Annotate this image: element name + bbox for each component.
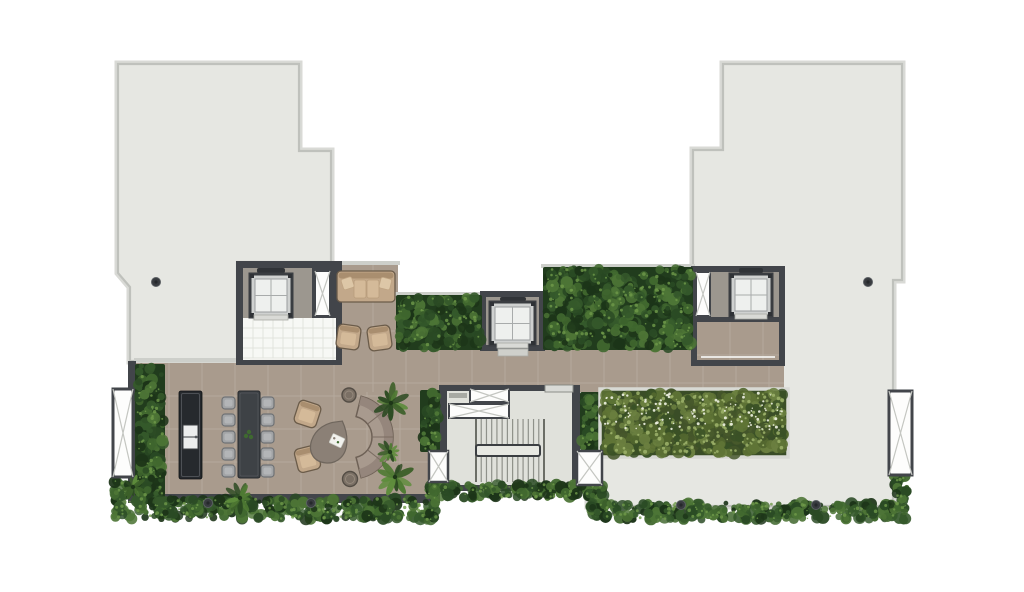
- lift-west-car-post-0: [250, 274, 254, 278]
- hedge-east-corner-leaf-fleck: [896, 503, 898, 505]
- side-table: [343, 472, 358, 487]
- hedge-south-east-leaf-fleck: [600, 504, 602, 506]
- hedge-south-center-left-leaf-fleck: [430, 518, 432, 520]
- hedge-south-center-leaf-fleck: [531, 487, 533, 489]
- hedge-south-west-bush: [361, 510, 373, 522]
- hedge-center-east-leaf-fleck: [689, 346, 692, 349]
- hedge-south-west-leaf-fleck: [322, 508, 325, 511]
- terrace-planting-bed-leaf-fleck: [155, 390, 157, 392]
- hedge-south-east-bush: [834, 501, 843, 510]
- hedge-south-center-left-leaf-fleck: [426, 518, 429, 521]
- planter-east-flower: [626, 394, 628, 396]
- hedge-south-center-leaf-fleck: [464, 493, 466, 495]
- planter-east-fleck: [703, 440, 706, 443]
- hedge-center-east-leaf-fleck: [555, 306, 558, 309]
- hedge-south-west-bush: [337, 505, 342, 510]
- hedge-east-corner-bush: [892, 489, 901, 498]
- hedge-south-east-leaf-fleck: [770, 503, 773, 506]
- hedge-center-east-leaf-fleck: [623, 291, 625, 293]
- lift-east-lintel: [739, 268, 763, 273]
- planter-east-flower: [604, 423, 606, 425]
- planter-east-fleck: [662, 447, 665, 450]
- chair-seat: [264, 468, 272, 475]
- planter-east-flower: [777, 410, 778, 411]
- hedge-center-west-leaf-fleck: [432, 298, 434, 300]
- hedge-center-west-leaf-fleck: [459, 334, 461, 336]
- hedge-center-west-bush: [477, 324, 482, 329]
- hedge-center-east-leaf-fleck: [551, 268, 554, 271]
- dining-set: [222, 391, 274, 478]
- lift-central-car-post-3: [531, 341, 535, 345]
- hedge-center-east-leaf-fleck: [662, 331, 664, 333]
- planter-east-shrub: [747, 443, 759, 455]
- hedge-south-east-leaf-fleck: [874, 510, 878, 514]
- planter-east-fleck: [673, 450, 676, 453]
- hedge-center-west-bush: [434, 319, 440, 325]
- hedge-by-stair-leaf-fleck: [432, 443, 434, 445]
- roof-drain: [307, 499, 316, 508]
- hedge-center-west-bush: [404, 338, 410, 344]
- hedge-south-west-leaf-fleck: [155, 511, 159, 515]
- planter-east-fleck: [623, 450, 627, 454]
- hedge-south-east-leaf-fleck: [639, 516, 642, 519]
- planter-east-fleck: [604, 445, 607, 448]
- planter-east-fleck: [623, 447, 626, 450]
- hedge-south-west-bush: [267, 510, 275, 518]
- hedge-south-west-leaf-fleck: [196, 504, 198, 506]
- planter-east-fleck: [615, 449, 618, 452]
- hedge-center-east-bush: [544, 339, 554, 349]
- hedge-south-west-bush: [397, 515, 402, 520]
- hedge-south-west-corner-leaf-fleck: [119, 498, 120, 499]
- hedge-center-west-bush: [466, 324, 475, 333]
- planter-east-flower: [689, 419, 690, 420]
- hedge-south-east-bush: [737, 507, 746, 516]
- hedge-south-east-leaf-fleck: [600, 511, 602, 513]
- lift-east-door-line: [701, 356, 775, 358]
- hedge-south-east-leaf-fleck: [634, 506, 635, 507]
- planter-east-shrub: [631, 404, 637, 410]
- hedge-center-east-leaf-fleck: [605, 277, 607, 279]
- hedge-east-corner-leaf-fleck: [898, 478, 901, 481]
- planter-east-fleck: [659, 419, 661, 421]
- hedge-center-east-leaf-fleck: [566, 338, 569, 341]
- hedge-south-center-leaf-fleck: [538, 489, 540, 491]
- planter-east-fleck: [762, 393, 764, 395]
- hedge-center-east-leaf-fleck: [611, 303, 614, 306]
- hedge-center-east-leaf-fleck: [641, 296, 643, 298]
- planter-east-shrub: [685, 395, 691, 401]
- planter-east-flower: [657, 407, 659, 409]
- planter-east-flower: [758, 410, 761, 413]
- terrace-planting-bed-bush: [148, 428, 153, 433]
- terrace-planting-bed-leaf-fleck: [155, 407, 158, 410]
- hedge-center-east-bush: [616, 296, 625, 305]
- hedge-south-east-bush: [741, 515, 750, 524]
- planter-east-fleck: [763, 396, 766, 399]
- hedge-south-west-leaf-fleck: [219, 503, 220, 504]
- hedge-center-east-leaf-fleck: [657, 296, 659, 298]
- hedge-south-east-bush: [621, 510, 633, 522]
- sofa-pillow: [379, 277, 392, 290]
- hedge-south-west-bush: [257, 500, 261, 504]
- hedge-center-west-leaf-fleck: [420, 309, 422, 311]
- hedge-south-east-leaf-fleck: [892, 514, 895, 517]
- hedge-south-east-bush: [704, 503, 711, 510]
- planter-east-fleck: [628, 407, 630, 409]
- terrace-planting-bed-leaf-fleck: [149, 470, 152, 473]
- planter-east-fleck: [705, 434, 708, 437]
- terrace-planting-bed-bush: [144, 486, 152, 494]
- planter-east-flower: [643, 423, 645, 425]
- planter-east-flower: [774, 417, 777, 420]
- hedge-center-east-leaf-fleck: [581, 269, 584, 272]
- hedge-east-corner-leaf-fleck: [900, 495, 903, 498]
- hedge-south-east-leaf-fleck: [720, 515, 723, 518]
- hedge-south-center-bush: [498, 481, 506, 489]
- hedge-south-center-leaf-fleck: [491, 485, 494, 488]
- hedge-center-east-leaf-fleck: [655, 275, 658, 278]
- terrace-planting-bed-leaf-fleck: [159, 475, 161, 477]
- planter-east-fleck: [731, 416, 733, 418]
- hedge-south-west-leaf-fleck: [406, 501, 408, 503]
- hedge-center-west-leaf-fleck: [410, 325, 413, 328]
- planter-east-fleck: [637, 434, 639, 436]
- planter-east-shrub: [697, 405, 706, 414]
- hedge-south-east-leaf-fleck: [765, 505, 768, 508]
- terrace-planting-bed-bush: [156, 468, 166, 478]
- planter-east-fleck: [699, 402, 701, 404]
- hedge-south-east-leaf-fleck: [779, 509, 781, 511]
- hedge-south-west-leaf-fleck: [298, 515, 301, 518]
- hedge-south-west-leaf-fleck: [206, 516, 208, 518]
- hedge-south-center-left-leaf-fleck: [428, 493, 430, 495]
- hedge-south-west-leaf-fleck: [140, 497, 143, 500]
- planter-east-fleck: [705, 439, 708, 442]
- vent-stair-se: [577, 451, 602, 485]
- hedge-center-east-leaf-fleck: [630, 305, 632, 307]
- hedge-south-west-leaf-fleck: [164, 502, 167, 505]
- planter-east: [598, 388, 789, 460]
- hedge-center-east-bush: [677, 324, 681, 328]
- hedge-by-stair-bush: [432, 423, 440, 431]
- terrace-planting-bed-leaf-fleck: [152, 408, 154, 410]
- drain-hole: [814, 503, 817, 506]
- planter-east-fleck: [731, 407, 734, 410]
- planter-east-fleck: [679, 421, 682, 424]
- planter-east-fleck: [686, 441, 688, 443]
- hedge-center-east-bush: [646, 294, 656, 304]
- lift-east-car-post-0: [730, 274, 734, 278]
- hedge-center-east-leaf-fleck: [662, 292, 664, 294]
- hedge-center-west-leaf-fleck: [415, 322, 416, 323]
- hedge-center-east-leaf-fleck: [599, 288, 602, 291]
- hedge-by-planter-leaf-fleck: [585, 411, 587, 413]
- hedge-center-east-leaf-fleck: [584, 269, 587, 272]
- hedge-south-east-leaf-fleck: [606, 506, 609, 509]
- planter-east-fleck: [616, 402, 619, 405]
- planter-east-fleck: [642, 399, 644, 401]
- hedge-south-west-leaf-fleck: [178, 508, 180, 510]
- terrace-planting-bed-bush: [156, 434, 168, 446]
- hedge-south-east-bush: [722, 507, 728, 513]
- hedge-south-east-leaf-fleck: [619, 513, 622, 516]
- planter-east-fleck: [670, 403, 672, 405]
- roof-drain: [204, 499, 213, 508]
- lift-east-shaft-duct: [696, 272, 710, 316]
- hedge-center-east-bush: [647, 310, 652, 315]
- hedge-center-east-bush: [583, 281, 592, 290]
- hedge-south-east-leaf-fleck: [843, 513, 847, 517]
- hedge-south-east-leaf-fleck: [856, 507, 860, 511]
- hedge-center-east-bush: [544, 313, 550, 319]
- planter-east-flower: [615, 421, 617, 423]
- hedge-south-west-leaf-fleck: [317, 505, 319, 507]
- roof-terrace-floor-plan: [0, 0, 1024, 592]
- planter-east-flower: [624, 427, 626, 429]
- hedge-south-center-leaf-fleck: [483, 489, 485, 491]
- planter-east-fleck: [745, 417, 747, 419]
- planter-east-fleck: [738, 407, 740, 409]
- hedge-center-west-bush: [452, 311, 457, 316]
- planter-east-flower: [664, 393, 666, 395]
- hedge-south-west-leaf-fleck: [347, 503, 350, 506]
- planter-east-fleck: [679, 439, 681, 441]
- planter-east-fleck: [623, 402, 625, 404]
- terrace-planting-bed-leaf-fleck: [143, 493, 146, 496]
- table-centerpiece: [244, 434, 248, 438]
- hedge-south-center-leaf-fleck: [485, 487, 487, 489]
- planter-east-flower: [703, 412, 705, 414]
- planter-east-fleck: [742, 400, 745, 403]
- hedge-south-east-leaf-fleck: [806, 510, 807, 511]
- planter-east-flower: [726, 407, 728, 409]
- lift-central-sill: [497, 343, 528, 348]
- hedge-south-west-leaf-fleck: [327, 501, 330, 504]
- hedge-center-east-bush: [613, 341, 621, 349]
- planter-east-flower: [768, 425, 770, 427]
- hedge-center-east-leaf-fleck: [602, 332, 605, 335]
- hedge-south-west-leaf-fleck: [224, 502, 226, 504]
- planter-east-fleck: [781, 408, 783, 410]
- hedge-south-east-leaf-fleck: [757, 517, 759, 519]
- chair-seat: [264, 417, 272, 424]
- planter-east-fleck: [736, 418, 739, 421]
- planter-east-fleck: [780, 446, 784, 450]
- hedge-center-west-leaf-fleck: [461, 321, 463, 323]
- hedge-center-east-bush: [676, 280, 685, 289]
- planter-east-flower: [614, 404, 616, 406]
- lift-east-car-post-3: [768, 312, 772, 316]
- planter-east-fleck: [659, 439, 661, 441]
- lift-west-sill: [254, 315, 288, 320]
- terrace-planting-bed-leaf-fleck: [153, 410, 156, 413]
- hedge-south-center-leaf-fleck: [508, 486, 510, 488]
- hedge-south-center-leaf-fleck: [564, 495, 567, 498]
- lift-east: [696, 268, 779, 360]
- hedge-south-east-leaf-fleck: [628, 504, 629, 505]
- planter-east-flower: [702, 399, 704, 401]
- hedge-center-east-leaf-fleck: [623, 315, 625, 317]
- hedge-center-west-bush: [403, 320, 409, 326]
- hedge-south-west-leaf-fleck: [129, 501, 131, 503]
- terrace-planting-bed-bush: [135, 378, 142, 385]
- hedge-south-west-leaf-fleck: [121, 509, 123, 511]
- planter-east-fleck: [710, 449, 712, 451]
- hedge-center-east-leaf-fleck: [560, 285, 564, 289]
- hedge-center-east-leaf-fleck: [634, 288, 636, 290]
- hedge-center-east-bush: [681, 333, 693, 345]
- planter-east-fleck: [726, 439, 728, 441]
- terrace-planting-bed-leaf-fleck: [138, 441, 140, 443]
- planter-east-flower: [639, 424, 641, 426]
- planter-east-flower: [645, 412, 647, 414]
- planter-east-fleck: [649, 395, 653, 399]
- hedge-center-east-leaf-fleck: [580, 289, 582, 291]
- hedge-center-east-leaf-fleck: [635, 304, 638, 307]
- hedge-south-west-leaf-fleck: [403, 514, 405, 516]
- hedge-center-east-leaf-fleck: [603, 335, 606, 338]
- hedge-south-center-left-leaf-fleck: [431, 509, 433, 511]
- hedge-center-west-leaf-fleck: [465, 317, 467, 319]
- hedge-south-center-bush: [513, 493, 522, 502]
- hedge-south-east-leaf-fleck: [832, 504, 834, 506]
- planter-east-flower: [779, 413, 781, 415]
- hedge-south-west-bush: [279, 496, 285, 502]
- hedge-center-east-leaf-fleck: [673, 341, 675, 343]
- terrace-planting-bed-bush: [148, 475, 155, 482]
- hedge-center-east-leaf-fleck: [585, 332, 589, 336]
- planter-east-fleck: [777, 440, 780, 443]
- hedge-south-west-leaf-fleck: [340, 516, 342, 518]
- planter-east-fleck: [603, 415, 606, 418]
- hedge-center-east-leaf-fleck: [646, 275, 648, 277]
- hedge-center-east-bush: [585, 340, 592, 347]
- planter-east-fleck: [665, 442, 669, 446]
- hedge-center-east-leaf-fleck: [615, 291, 618, 294]
- palm-center: [131, 485, 135, 489]
- hedge-center-east-leaf-fleck: [620, 325, 623, 328]
- planter-east-fleck: [679, 449, 683, 453]
- hedge-south-west-leaf-fleck: [396, 503, 398, 505]
- hedge-south-west-leaf-fleck: [170, 507, 172, 509]
- hedge-center-east-leaf-fleck: [674, 345, 677, 348]
- planter-east-fleck: [766, 399, 769, 402]
- hedge-center-east-bush: [645, 341, 655, 351]
- planter-east-flower: [750, 414, 753, 417]
- hedge-south-west-leaf-fleck: [121, 513, 123, 515]
- terrace-top-parapet: [134, 358, 238, 362]
- hedge-by-stair-bush: [429, 444, 435, 450]
- chair-seat: [225, 468, 233, 475]
- hedge-center-east-leaf-fleck: [638, 274, 640, 276]
- planter-east-fleck: [701, 427, 703, 429]
- planter-east-flower: [691, 411, 692, 412]
- hedge-south-west-leaf-fleck: [191, 507, 194, 510]
- planter-east-fleck: [742, 441, 744, 443]
- hedge-south-east-leaf-fleck: [738, 508, 740, 510]
- palm-center: [393, 475, 397, 479]
- lift-west-lintel: [257, 268, 285, 273]
- planter-east-fleck: [764, 412, 767, 415]
- planter-east-fleck: [610, 432, 612, 434]
- hedge-south-west-leaf-fleck: [323, 517, 325, 519]
- hedge-center-east-bush: [664, 337, 674, 347]
- hedge-south-east-leaf-fleck: [622, 504, 625, 507]
- planter-east-flower: [742, 396, 745, 399]
- hedge-south-east-leaf-fleck: [849, 512, 851, 514]
- hedge-south-center-leaf-fleck: [443, 489, 445, 491]
- hedge-south-west-leaf-fleck: [189, 516, 191, 518]
- hedge-center-east-leaf-fleck: [558, 331, 561, 334]
- hedge-center-east-bush: [622, 326, 629, 333]
- hedge-south-west-leaf-fleck: [183, 502, 186, 505]
- hedge-center-west-bush: [418, 345, 423, 350]
- hedge-south-west-bush: [423, 499, 429, 505]
- hedge-center-west-leaf-fleck: [400, 305, 402, 307]
- planter-east-fleck: [676, 442, 679, 445]
- planter-east-fleck: [708, 430, 711, 433]
- hedge-center-east-leaf-fleck: [657, 290, 659, 292]
- terrace-planting-bed-leaf-fleck: [147, 462, 149, 464]
- hedge-center-east-bush: [655, 265, 664, 274]
- planter-east-fleck: [671, 395, 674, 398]
- hedge-center-east-bush: [665, 306, 670, 311]
- kitchen-island: [179, 391, 202, 479]
- hedge-center-east-bush: [649, 329, 657, 337]
- hedge-center-east-leaf-fleck: [645, 314, 648, 317]
- hedge-center-east-leaf-fleck: [551, 284, 554, 287]
- hedge-center-west-leaf-fleck: [473, 316, 476, 319]
- hedge-by-stair-leaf-fleck: [427, 442, 430, 445]
- lift-central-car: [490, 302, 535, 345]
- drain-hole: [309, 501, 312, 504]
- planter-east-flower: [755, 416, 757, 418]
- planter-east-fleck: [717, 431, 719, 433]
- side-table-top: [343, 472, 358, 487]
- hedge-center-east-bush: [673, 291, 680, 298]
- hedge-center-east-leaf-fleck: [689, 269, 692, 272]
- hedge-center-east-leaf-fleck: [662, 288, 665, 291]
- planter-east-flower: [629, 414, 631, 416]
- hedge-center-east-bush: [663, 277, 671, 285]
- lounge-sofa: [337, 271, 395, 302]
- hedge-south-west-leaf-fleck: [136, 509, 139, 512]
- roof-drain: [677, 501, 686, 510]
- terrace-planting-bed-leaf-fleck: [139, 412, 142, 415]
- hedge-center-east-leaf-fleck: [590, 332, 592, 334]
- hedge-south-east-leaf-fleck: [782, 517, 784, 519]
- hedge-center-west-leaf-fleck: [411, 301, 415, 305]
- planter-east-flower: [628, 412, 630, 414]
- planter-east-fleck: [757, 397, 759, 399]
- lift-east-car-post-1: [768, 274, 772, 278]
- hedge-south-east-bush: [655, 515, 660, 520]
- chair-seat: [264, 400, 272, 407]
- hedge-south-west-leaf-fleck: [308, 511, 311, 514]
- hedge-south-center-leaf-fleck: [501, 496, 504, 499]
- hedge-center-east-leaf-fleck: [659, 341, 662, 344]
- hedge-south-east-leaf-fleck: [667, 505, 669, 507]
- planter-east-flower: [741, 420, 743, 422]
- hedge-south-east-leaf-fleck: [605, 510, 607, 512]
- hedge-center-west-leaf-fleck: [420, 336, 423, 339]
- hedge-south-west-bush: [359, 496, 367, 504]
- terrace-planting-bed-leaf-fleck: [139, 477, 141, 479]
- hedge-center-east-leaf-fleck: [547, 278, 549, 280]
- hedge-south-west-leaf-fleck: [421, 514, 424, 517]
- planter-east-shrub: [685, 413, 692, 420]
